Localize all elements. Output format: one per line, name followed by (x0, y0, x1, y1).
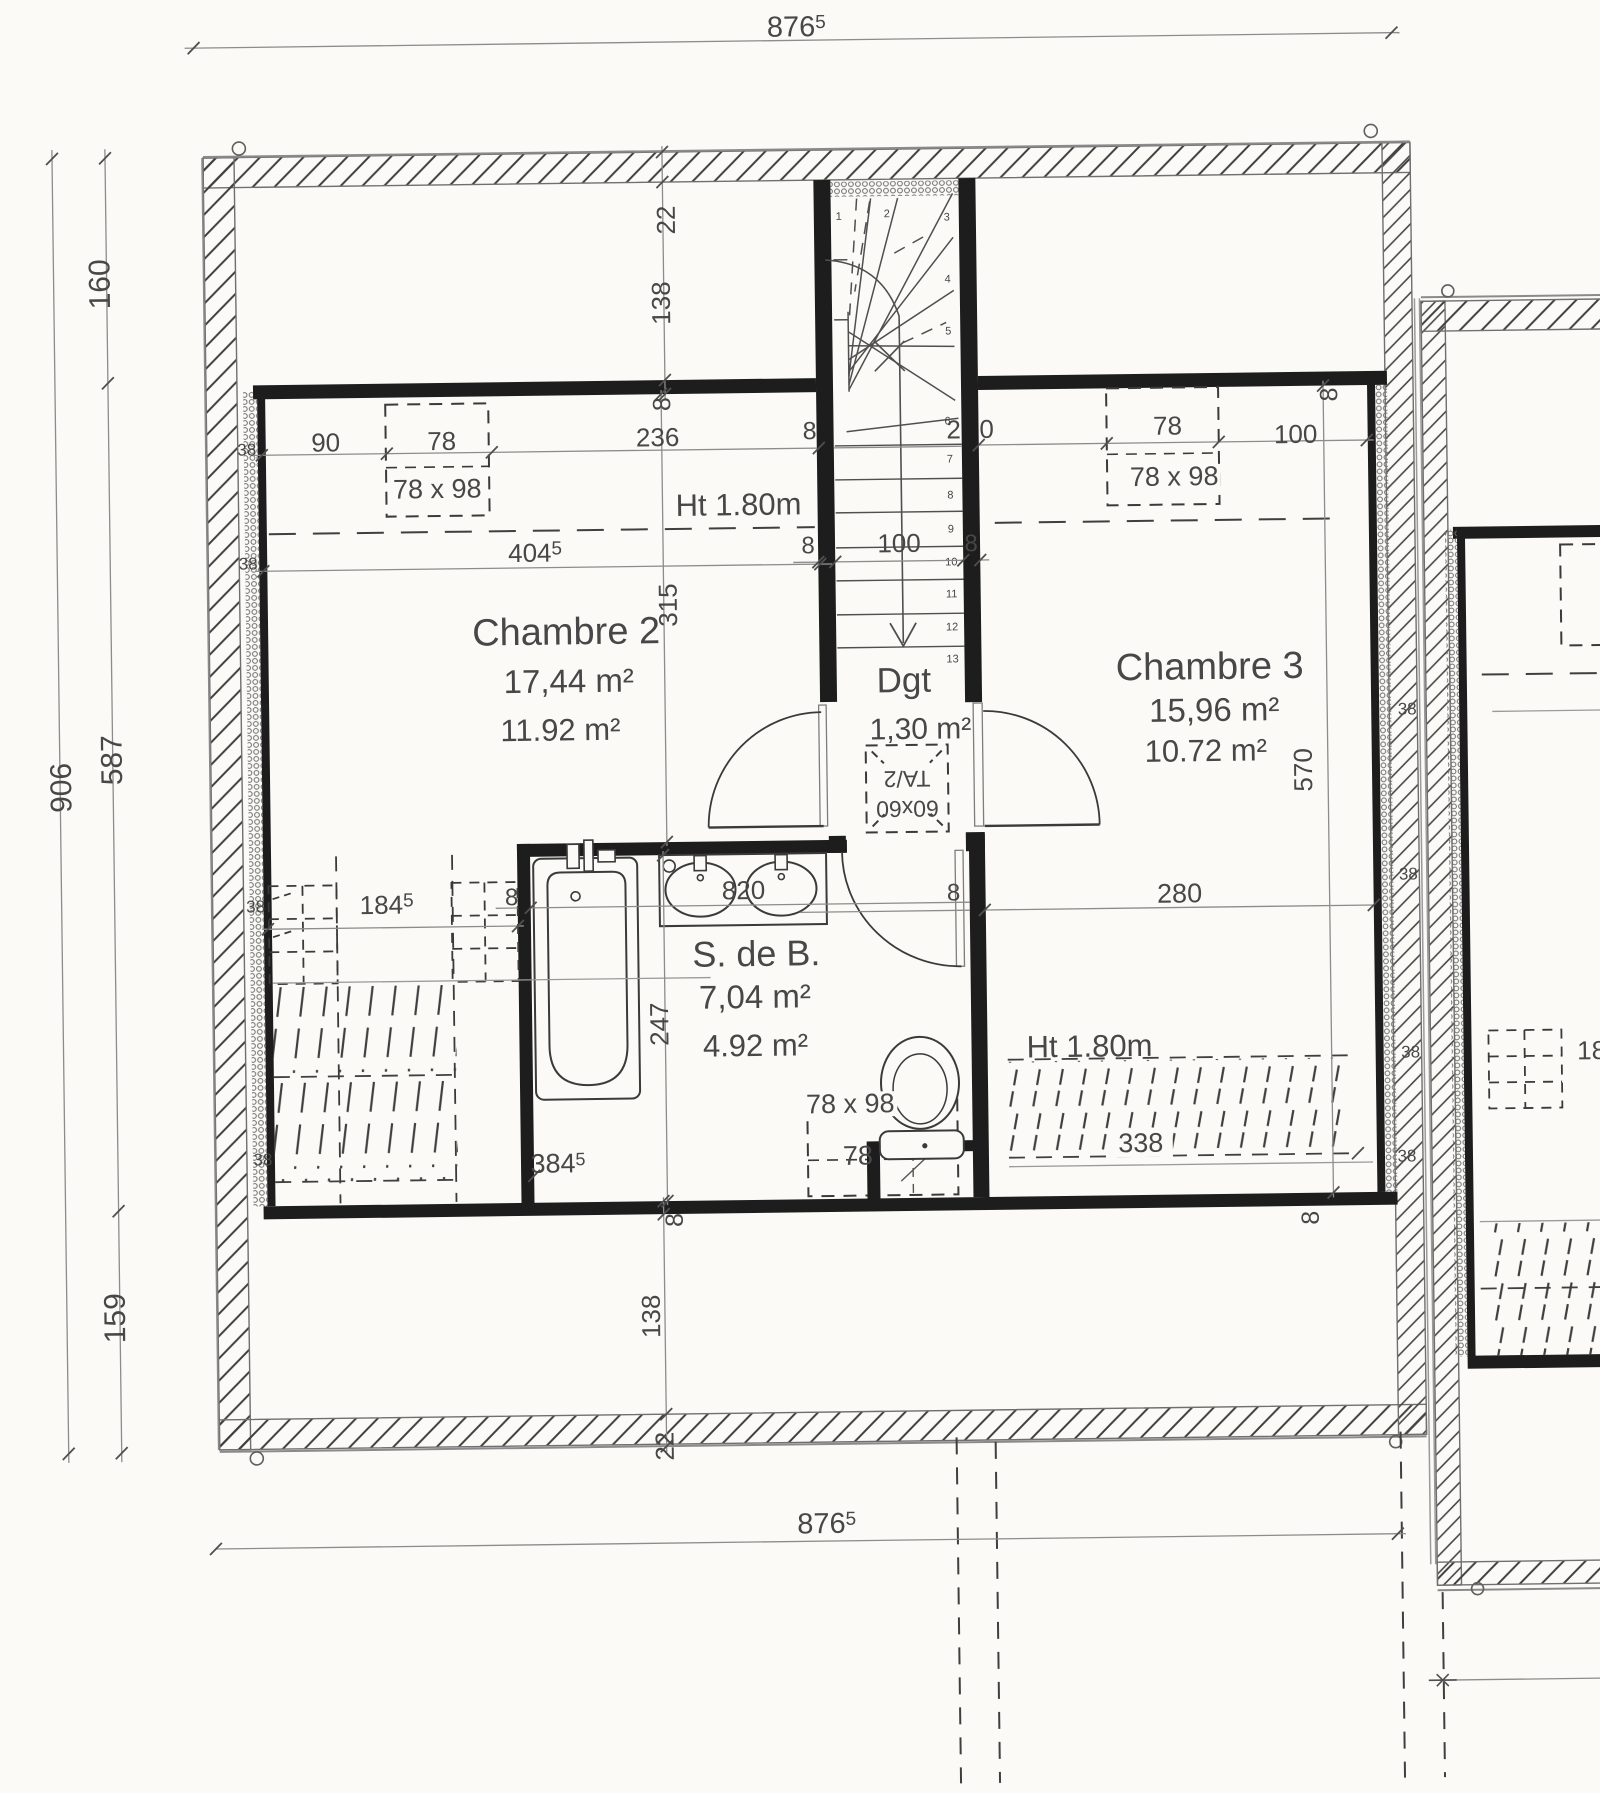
svg-text:7,04 m²: 7,04 m² (699, 977, 811, 1015)
svg-text:8: 8 (1297, 1211, 1325, 1225)
svg-text:17,44 m²: 17,44 m² (503, 662, 634, 701)
svg-text:2: 2 (884, 208, 890, 220)
svg-text:8: 8 (947, 489, 953, 501)
svg-text:1: 1 (836, 211, 842, 223)
svg-text:7: 7 (947, 453, 953, 465)
svg-text:138: 138 (646, 281, 677, 325)
svg-text:38: 38 (1398, 699, 1417, 718)
svg-text:22: 22 (649, 1432, 679, 1461)
svg-text:78 x 98: 78 x 98 (1130, 461, 1219, 492)
svg-text:18: 18 (1577, 1035, 1600, 1065)
svg-text:280: 280 (1157, 878, 1202, 909)
svg-text:11.92 m²: 11.92 m² (500, 712, 620, 749)
svg-text:100: 100 (877, 528, 921, 559)
svg-text:236: 236 (636, 422, 680, 453)
svg-text:8: 8 (964, 530, 978, 557)
svg-text:138: 138 (636, 1294, 667, 1338)
svg-text:Chambre 3: Chambre 3 (1115, 645, 1304, 689)
svg-text:38: 38 (253, 1150, 272, 1169)
svg-text:3: 3 (944, 211, 950, 223)
svg-text:10.72 m²: 10.72 m² (1144, 732, 1267, 769)
svg-text:78 x 98: 78 x 98 (806, 1088, 895, 1119)
svg-text:159: 159 (99, 1293, 133, 1343)
svg-text:4.92 m²: 4.92 m² (703, 1027, 809, 1063)
svg-text:8: 8 (661, 1213, 689, 1227)
svg-text:12: 12 (946, 621, 958, 633)
svg-text:9: 9 (948, 523, 954, 535)
svg-text:2: 2 (946, 414, 961, 444)
svg-text:8: 8 (648, 397, 676, 411)
svg-text:4: 4 (944, 273, 950, 285)
svg-text:100: 100 (1274, 419, 1318, 450)
svg-text:8: 8 (947, 879, 961, 906)
svg-text:Ht 1.80m: Ht 1.80m (675, 486, 801, 523)
svg-text:TA/2: TA/2 (883, 766, 930, 793)
svg-text:Chambre 2: Chambre 2 (472, 610, 661, 654)
svg-text:160: 160 (83, 259, 117, 309)
svg-text:247: 247 (644, 1002, 675, 1046)
svg-text:38: 38 (246, 897, 265, 916)
svg-text:338: 338 (1118, 1128, 1163, 1159)
svg-text:78 x 98: 78 x 98 (393, 473, 482, 504)
svg-text:13: 13 (946, 653, 958, 665)
svg-text:3845: 3845 (530, 1148, 585, 1179)
svg-text:570: 570 (1288, 748, 1319, 792)
svg-text:1845: 1845 (359, 889, 413, 920)
svg-text:38: 38 (1399, 864, 1418, 883)
svg-text:38: 38 (1397, 1146, 1416, 1165)
svg-text:38: 38 (237, 440, 256, 459)
svg-text:5: 5 (945, 325, 951, 337)
svg-text:8: 8 (505, 884, 519, 911)
svg-text:8765: 8765 (797, 1508, 856, 1541)
svg-text:78: 78 (1153, 410, 1182, 440)
svg-text:906: 906 (45, 763, 79, 813)
svg-text:8: 8 (1315, 387, 1343, 401)
svg-text:15,96 m²: 15,96 m² (1149, 690, 1280, 729)
svg-text:Ht 1.80m: Ht 1.80m (1026, 1028, 1152, 1065)
svg-text:10: 10 (945, 556, 957, 568)
svg-text:1,30 m²: 1,30 m² (869, 712, 971, 746)
svg-text:11: 11 (946, 588, 958, 600)
svg-text:38: 38 (1401, 1042, 1420, 1061)
svg-text:22: 22 (651, 205, 681, 234)
svg-text:820: 820 (722, 875, 766, 906)
svg-text:587: 587 (95, 735, 129, 785)
svg-text:8765: 8765 (767, 11, 826, 44)
svg-text:60x60: 60x60 (876, 796, 939, 823)
svg-text:4045: 4045 (508, 537, 562, 568)
svg-text:8: 8 (801, 532, 815, 559)
svg-text:Dgt: Dgt (876, 661, 931, 701)
svg-text:38: 38 (239, 554, 258, 573)
svg-text:8: 8 (802, 417, 816, 445)
svg-text:S. de B.: S. de B. (692, 932, 821, 975)
svg-text:78: 78 (843, 1140, 873, 1170)
svg-text:0: 0 (979, 414, 994, 444)
svg-text:90: 90 (311, 427, 340, 457)
svg-text:78: 78 (427, 426, 456, 456)
